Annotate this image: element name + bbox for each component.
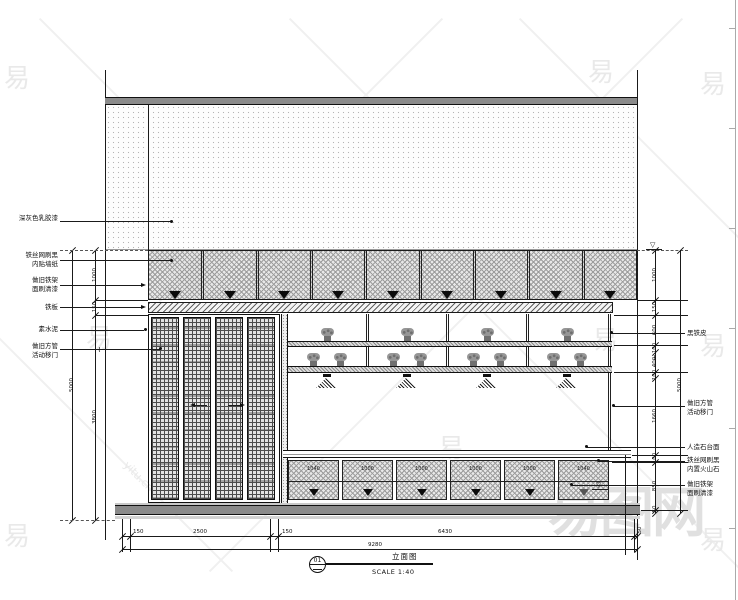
sheet-border-tick	[729, 128, 736, 129]
annotation-plain-cement: 素水泥	[0, 325, 58, 334]
dim-label: 50	[652, 496, 658, 522]
mesh-band-divider	[582, 251, 585, 299]
annotation-leader-dot	[585, 445, 588, 448]
counter-panel-size-label: 1000	[450, 466, 501, 472]
dim-extension-line	[612, 462, 688, 463]
sheet-border-tick	[729, 228, 736, 229]
annotation-aged-iron-frame-right: 做旧铁架面刷清漆	[687, 480, 713, 498]
annotation-sliding-door: 做旧方管活动移门	[0, 342, 58, 360]
door-slide-arrow-right	[240, 403, 245, 407]
mesh-band-divider	[364, 251, 367, 299]
drawing-scale: SCALE 1:40	[372, 568, 415, 576]
level-marker-line	[646, 249, 662, 250]
wall-joint-line	[148, 105, 149, 250]
sliding-door-panel	[183, 317, 211, 500]
annotation-leader-dot	[570, 483, 573, 486]
spotlight-icon	[224, 291, 236, 299]
lower-shelf-board	[288, 366, 612, 373]
downlight-icon	[396, 374, 418, 389]
mesh-band-divider	[473, 251, 476, 299]
annotation-leader-dot	[144, 328, 147, 331]
dim-line-left-inner	[95, 250, 96, 520]
floor-strip-bottom	[115, 516, 640, 519]
sliding-door-panel	[151, 317, 179, 500]
door-slide-arrow-shaft	[195, 405, 207, 406]
annotation-leader-line	[60, 221, 172, 222]
watermark-glyph: 易	[4, 58, 30, 95]
downlight-icon	[476, 374, 498, 389]
sliding-door-panel	[215, 317, 243, 500]
plant-decor-icon	[414, 353, 427, 366]
counter-panel-size-label: 1040	[558, 466, 609, 472]
annotation-leader-line	[60, 260, 170, 261]
level-marker-icon: ▽	[650, 242, 655, 249]
mesh-band-divider	[256, 251, 259, 299]
annotation-wire-mesh-wallpaper: 铁丝网刷黑内贴墙纸	[0, 251, 58, 269]
dim-label-bottom-total: 9280	[368, 542, 382, 548]
spotlight-icon	[604, 291, 616, 299]
mesh-band-divider	[419, 251, 422, 299]
dim-line-bottom-outer	[122, 549, 637, 550]
counter-spotlight-icon	[309, 489, 319, 496]
mesh-band-divider	[201, 251, 204, 299]
spotlight-icon	[387, 291, 399, 299]
annotation-leader-arrow	[141, 305, 146, 309]
sheet-border-line	[735, 0, 736, 600]
sliding-door-panel	[247, 317, 275, 500]
watermark-glyph: 易	[4, 516, 30, 553]
counter-right-line	[625, 455, 626, 555]
shelf-side-panel	[608, 314, 611, 451]
cement-column	[281, 314, 288, 503]
dim-label: 6430	[438, 529, 452, 535]
spotlight-icon	[550, 291, 562, 299]
iron-plate-band	[148, 302, 613, 313]
mesh-band-divider	[527, 251, 530, 299]
dim-line-bottom-inner	[122, 536, 637, 537]
elevation-drawing-sheet: 易 易 易 易 易 易 易 易 易 易 yitu.cn yitu.cn yitu…	[0, 0, 738, 600]
annotation-leader-line	[60, 330, 144, 331]
annotation-wire-mesh-lava-stone: 铁丝网刷黑内置火山石	[687, 456, 720, 474]
painted-wall-area	[106, 105, 637, 250]
plant-decor-icon	[561, 328, 574, 341]
annotation-leader-line	[60, 285, 142, 286]
counter-panel-size-label: 1000	[396, 466, 447, 472]
dim-extension-line	[60, 250, 148, 251]
dim-extension-line	[60, 520, 115, 521]
dim-extension-line	[95, 300, 148, 301]
annotation-leader-dot	[597, 459, 600, 462]
plant-decor-icon	[574, 353, 587, 366]
annotation-aged-iron-frame: 做旧铁架面刷清漆	[0, 276, 58, 294]
spotlight-icon	[332, 291, 344, 299]
annotation-leader-line	[587, 447, 685, 448]
plant-decor-icon	[334, 353, 347, 366]
spotlight-icon	[278, 291, 290, 299]
dim-extension-line	[95, 315, 148, 316]
spotlight-icon	[441, 291, 453, 299]
dim-label: 100	[652, 362, 658, 388]
floor-slab	[115, 505, 640, 515]
annotation-leader-dot	[170, 220, 173, 223]
plant-decor-icon	[307, 353, 320, 366]
watermark-glyph: 易	[700, 64, 726, 101]
dim-extension-line	[614, 345, 688, 346]
break-symbol: ~	[650, 354, 659, 361]
countertop-inner-line	[283, 454, 631, 455]
sheet-border-tick	[729, 428, 736, 429]
annotation-leader-dot	[610, 331, 613, 334]
downlight-icon	[556, 374, 578, 389]
annotation-black-iron-sheet: 黑铁皮	[687, 329, 707, 338]
dim-label-right-total: 5000	[677, 372, 683, 398]
annotation-leader-line	[60, 349, 160, 350]
annotation-sliding-door-right: 做旧方管活动移门	[687, 399, 713, 417]
dim-label: 150	[282, 529, 293, 535]
annotation-leader-line	[612, 333, 685, 334]
drawing-title: 立面图	[392, 551, 418, 564]
upper-shelf-board	[288, 341, 612, 347]
spotlight-icon	[495, 291, 507, 299]
dim-label: 1000	[652, 262, 658, 288]
plant-decor-icon	[481, 328, 494, 341]
annotation-leader-arrow	[141, 283, 146, 287]
plant-decor-icon	[321, 328, 334, 341]
counter-spotlight-icon	[471, 489, 481, 496]
annotation-leader-dot	[170, 259, 173, 262]
annotation-leader-line	[614, 406, 685, 407]
sheet-border-tick	[729, 28, 736, 29]
ceiling-band	[105, 97, 637, 105]
annotation-leader-line	[599, 461, 685, 462]
dim-label: 100	[652, 445, 658, 471]
plant-decor-icon	[467, 353, 480, 366]
watermark-glyph: 易	[588, 52, 614, 89]
annotation-iron-plate: 铁板	[0, 303, 58, 312]
counter-mid-line	[288, 481, 609, 482]
detail-circle-divider	[309, 564, 326, 565]
sheet-border-tick	[729, 528, 736, 529]
counter-panel-size-label: 1000	[342, 466, 393, 472]
downlight-icon	[316, 374, 338, 389]
dim-label: 150	[133, 529, 144, 535]
dim-label: 50	[637, 524, 643, 536]
dim-label: 2500	[193, 529, 207, 535]
annotation-leader-dot	[612, 404, 615, 407]
annotation-leader-dot	[159, 347, 162, 350]
dim-extension-line	[614, 315, 688, 316]
dim-label-left-total: 5000	[69, 372, 75, 398]
counter-spotlight-icon	[579, 489, 589, 496]
counter-spotlight-icon	[525, 489, 535, 496]
spotlight-icon	[169, 291, 181, 299]
plant-decor-icon	[401, 328, 414, 341]
counter-panel-size-label: 1040	[288, 466, 339, 472]
annotation-leader-line	[60, 307, 142, 308]
plant-decor-icon	[387, 353, 400, 366]
counter-spotlight-icon	[417, 489, 427, 496]
plant-decor-icon	[494, 353, 507, 366]
counter-spotlight-icon	[363, 489, 373, 496]
door-slide-arrow-shaft	[228, 405, 240, 406]
annotation-leader-line	[572, 485, 685, 486]
annotation-paint: 深灰色乳胶漆	[0, 214, 58, 223]
detail-number: 01	[309, 557, 326, 564]
annotation-stone-countertop: 人造石台面	[687, 443, 720, 452]
mesh-band-divider	[310, 251, 313, 299]
level-marker-line	[592, 489, 608, 490]
watermark-glyph: 易	[592, 320, 618, 357]
detail-circle-dash	[313, 569, 322, 570]
plant-decor-icon	[547, 353, 560, 366]
counter-panel-size-label: 1000	[504, 466, 555, 472]
dim-label: 3800	[92, 404, 98, 430]
sheet-border-tick	[729, 328, 736, 329]
